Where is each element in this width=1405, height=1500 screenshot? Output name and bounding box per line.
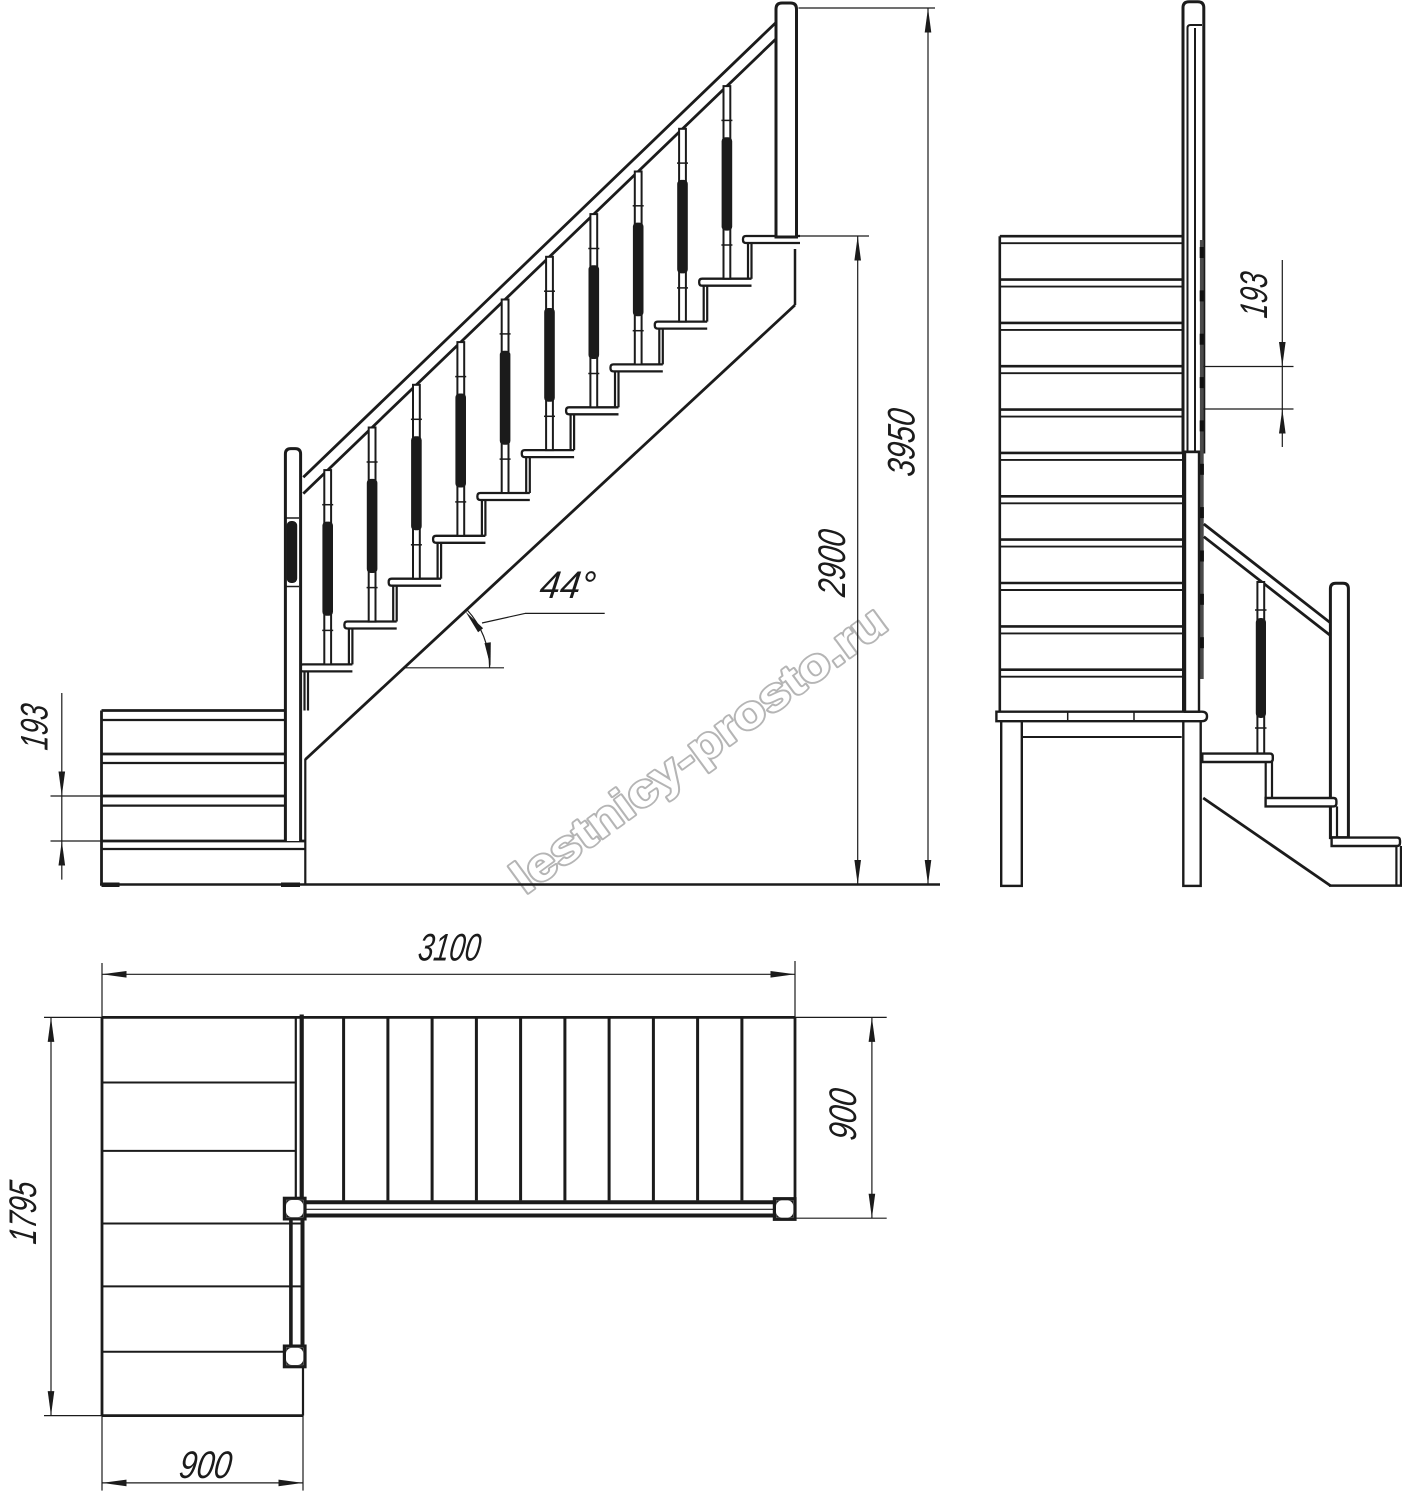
svg-text:2900: 2900 [811,526,854,599]
svg-text:193: 193 [14,701,57,752]
svg-text:3100: 3100 [416,927,484,970]
svg-text:44°: 44° [537,564,598,607]
svg-text:900: 900 [177,1444,235,1487]
svg-text:1795: 1795 [2,1178,45,1246]
svg-text:900: 900 [822,1085,865,1142]
svg-text:3950: 3950 [881,405,924,478]
svg-text:193: 193 [1233,269,1276,320]
